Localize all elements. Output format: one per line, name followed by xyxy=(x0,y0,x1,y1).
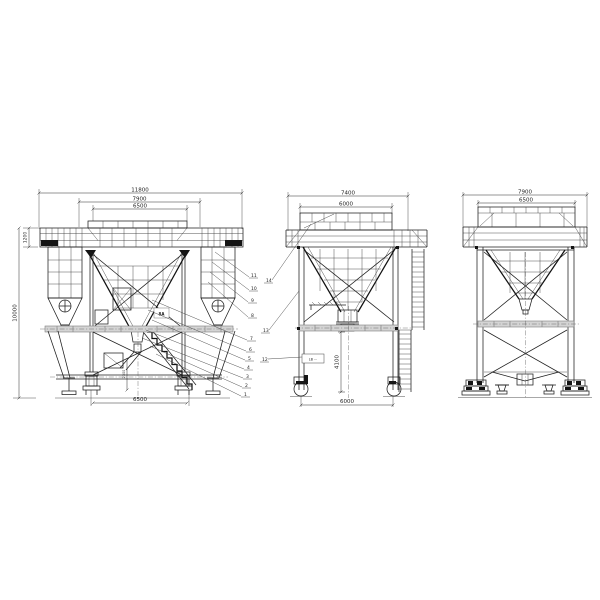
callout-5: 5 xyxy=(248,356,251,362)
drawing-canvas: 11800 7900 6500 1200 10000 6500 2300 xyxy=(0,0,600,600)
rear-structure xyxy=(475,246,574,383)
side-top-bin xyxy=(300,213,392,230)
label-box-text: LB ··· xyxy=(309,357,318,361)
callout-11: 11 xyxy=(251,273,257,279)
end-stop-right xyxy=(225,240,242,246)
front-dimension-lines xyxy=(13,189,244,406)
callout-9: 9 xyxy=(251,298,254,304)
callout-12: 12 xyxy=(262,357,268,363)
callout-6: 6 xyxy=(249,347,252,353)
rear-dimension-texts: 7900 6500 xyxy=(518,190,533,204)
dim-11800: 11800 xyxy=(131,188,149,194)
dim-6500-rear: 6500 xyxy=(519,198,533,204)
dim-7400: 7400 xyxy=(341,191,355,197)
dim-4100: 4100 xyxy=(335,355,341,369)
dim-6500-front-top: 6500 xyxy=(133,204,147,210)
front-elevation-view: 11800 7900 6500 1200 10000 6500 2300 xyxy=(13,188,259,407)
rear-top-bin xyxy=(478,207,575,227)
side-walkway-band xyxy=(286,230,427,247)
front-right-tower xyxy=(201,247,235,331)
front-detail-mark: 8A xyxy=(154,308,169,318)
side-wheels xyxy=(290,375,405,397)
front-left-tower xyxy=(48,247,82,331)
rear-mid-platform xyxy=(473,321,579,327)
dim-6000-top: 6000 xyxy=(339,202,353,208)
front-dimension-texts: 11800 7900 6500 1200 10000 6500 2300 xyxy=(13,188,150,404)
side-label-box: LB ··· xyxy=(302,354,324,363)
callout-2: 2 xyxy=(245,383,248,389)
callout-8: 8 xyxy=(251,313,254,319)
end-stop-left xyxy=(41,240,58,246)
rear-walkway-band xyxy=(463,227,587,247)
side-mid-platform xyxy=(295,325,412,331)
technical-drawing-page: 11800 7900 6500 1200 10000 6500 2300 xyxy=(0,0,600,600)
front-top-platform xyxy=(40,228,243,247)
front-lower-structure xyxy=(48,331,235,400)
side-hopper-structure xyxy=(297,246,399,390)
callout-3: 3 xyxy=(246,374,249,380)
callout-4: 4 xyxy=(247,365,250,371)
side-elevation-view: 7400 6000 4100 6000 xyxy=(260,191,427,408)
rear-feet xyxy=(458,380,592,398)
callout-1: 1 xyxy=(244,392,247,398)
dim-6000-bottom: 6000 xyxy=(340,399,354,405)
dim-7900-rear: 7900 xyxy=(518,190,532,196)
dim-10000: 10000 xyxy=(13,304,19,322)
callout-10: 10 xyxy=(251,286,257,292)
rear-elevation-view: 7900 6500 xyxy=(458,190,592,399)
dim-1200: 1200 xyxy=(23,232,29,244)
front-mid-platform xyxy=(40,326,238,332)
callout-7: 7 xyxy=(250,336,253,342)
side-callouts: 14 13 12 xyxy=(260,224,311,363)
front-callouts: 11 10 9 8 7 6 5 4 3 2 1 xyxy=(142,252,258,398)
side-ladder xyxy=(398,249,424,330)
dim-7900-front: 7900 xyxy=(133,197,147,203)
callout-14: 14 xyxy=(266,278,272,284)
front-top-bin xyxy=(88,221,187,228)
callout-13: 13 xyxy=(263,328,269,334)
front-feet xyxy=(55,372,230,398)
side-stair xyxy=(399,330,411,392)
